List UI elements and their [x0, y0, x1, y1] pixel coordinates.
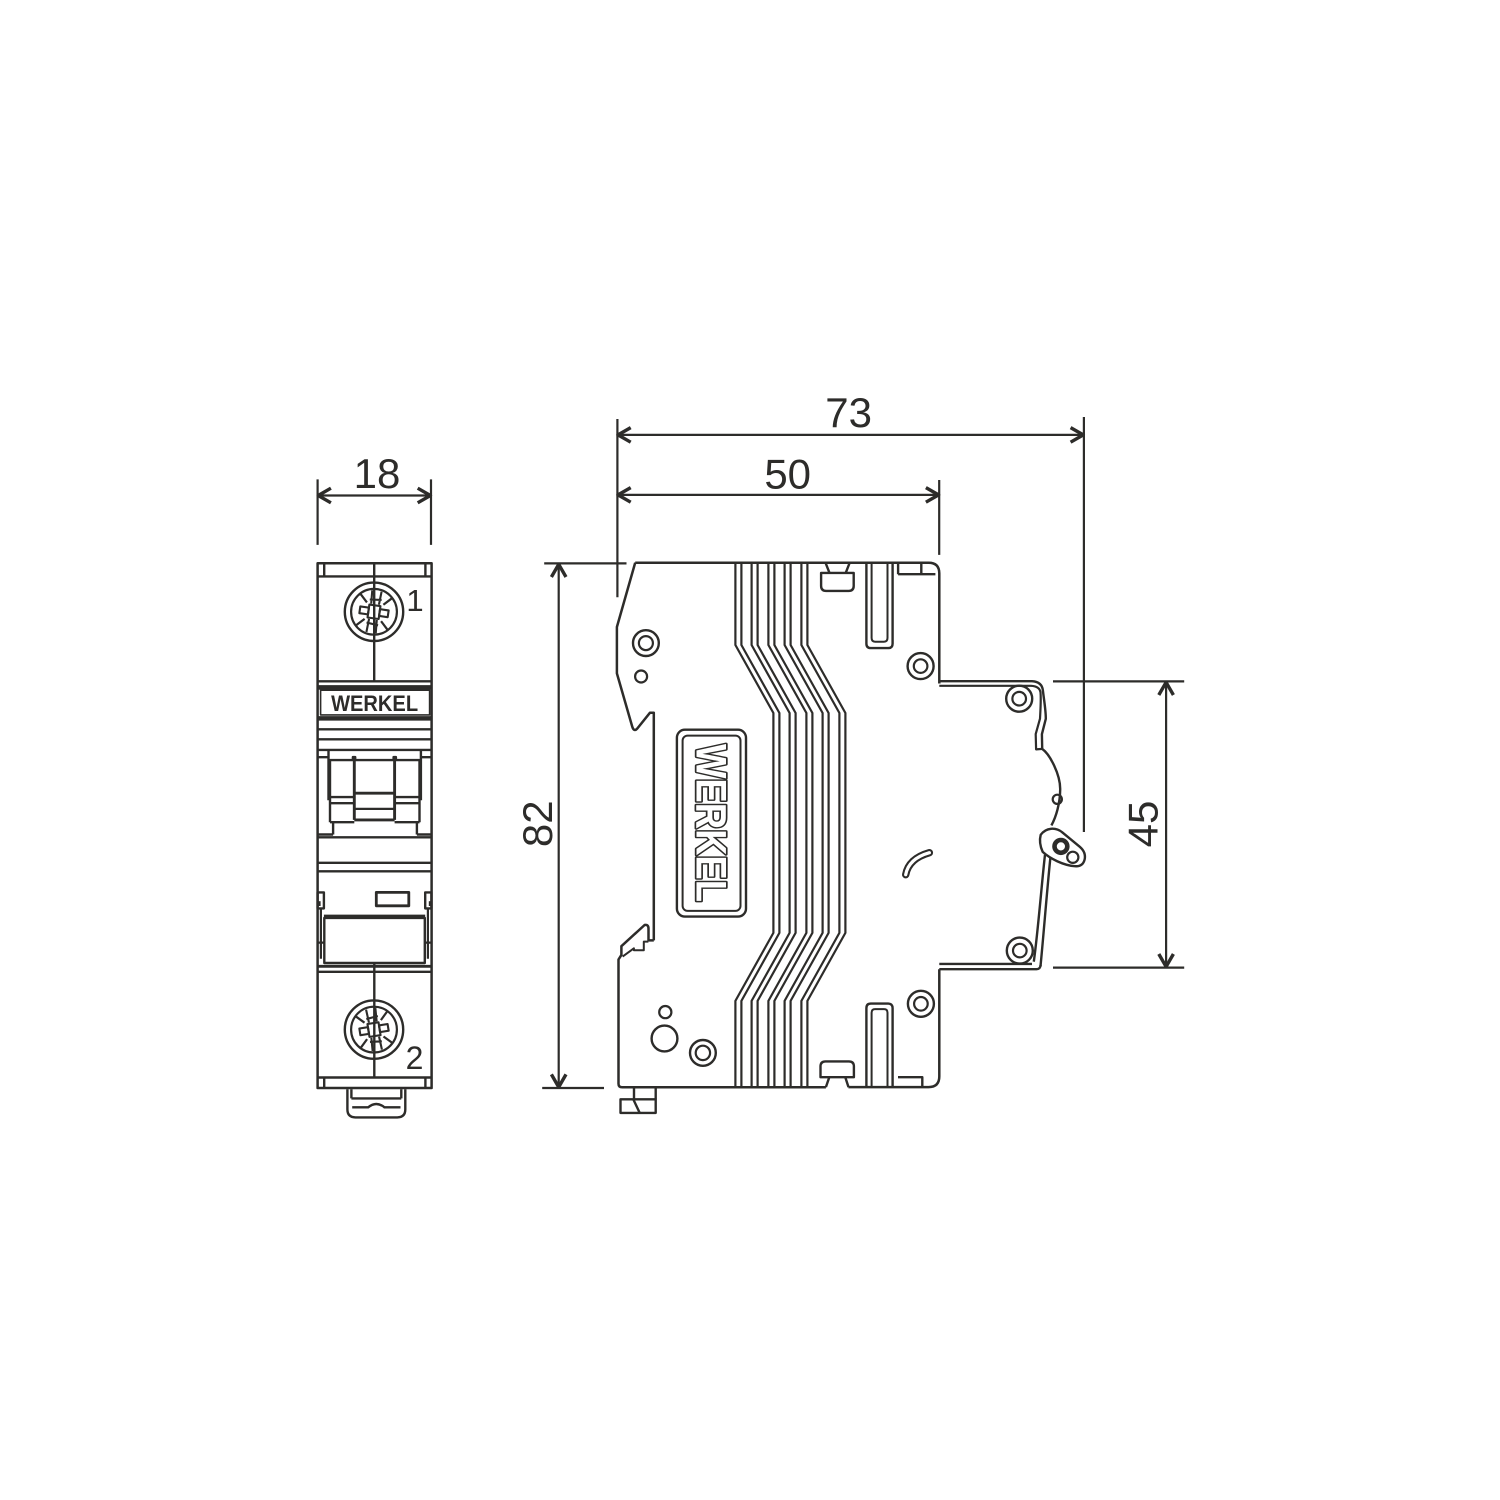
svg-text:2: 2	[406, 1040, 424, 1076]
svg-text:50: 50	[764, 450, 811, 497]
svg-text:45: 45	[1120, 801, 1167, 848]
svg-text:82: 82	[514, 800, 561, 847]
svg-text:WERKEL: WERKEL	[331, 691, 418, 716]
svg-text:18: 18	[354, 450, 401, 497]
svg-text:73: 73	[825, 389, 872, 436]
svg-text:1: 1	[406, 583, 423, 618]
svg-text:WERKEL: WERKEL	[687, 744, 735, 902]
